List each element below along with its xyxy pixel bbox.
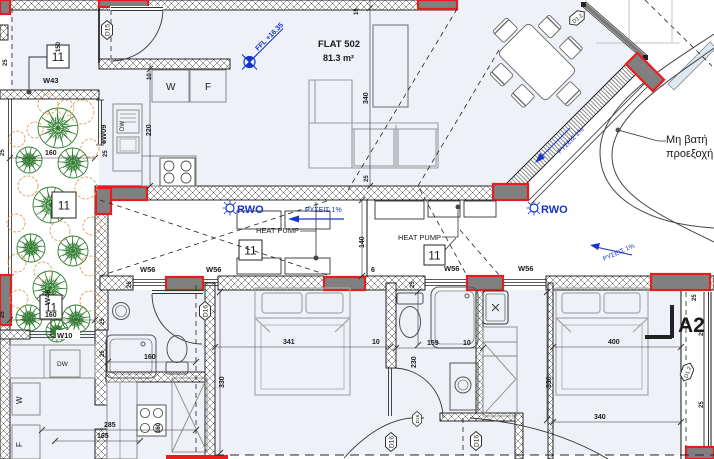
svg-text:25: 25 [692, 294, 698, 301]
svg-text:25: 25 [699, 329, 705, 336]
svg-text:W: W [166, 82, 176, 93]
svg-text:150: 150 [56, 41, 62, 52]
svg-text:W09: W09 [99, 125, 108, 140]
svg-text:165: 165 [97, 433, 109, 440]
svg-text:11: 11 [428, 249, 441, 263]
svg-text:160: 160 [156, 422, 162, 433]
svg-text:D16: D16 [389, 436, 396, 448]
svg-text:11: 11 [58, 199, 71, 213]
svg-text:D16: D16 [415, 414, 421, 423]
svg-text:HEAT PUMP: HEAT PUMP [256, 226, 299, 235]
svg-text:25: 25 [100, 318, 106, 325]
svg-text:341: 341 [283, 339, 295, 346]
svg-text:D16: D16 [474, 435, 481, 447]
svg-text:25: 25 [699, 401, 705, 408]
svg-text:F: F [205, 82, 211, 93]
svg-text:340: 340 [363, 92, 370, 104]
svg-text:D15: D15 [105, 24, 112, 36]
svg-text:340: 340 [594, 414, 606, 421]
svg-text:25: 25 [364, 175, 370, 182]
svg-text:140: 140 [359, 236, 366, 248]
svg-text:W56: W56 [444, 264, 459, 273]
svg-text:10: 10 [147, 73, 153, 80]
svg-text:W56: W56 [206, 265, 221, 274]
svg-text:25: 25 [410, 281, 416, 288]
svg-text:25: 25 [3, 59, 9, 66]
svg-text:160: 160 [144, 354, 156, 361]
svg-text:330: 330 [546, 376, 553, 388]
svg-text:ΡΥΣΕΙΣ 1%: ΡΥΣΕΙΣ 1% [305, 207, 342, 214]
svg-text:RWO: RWO [541, 204, 568, 216]
svg-text:Μη βατή: Μη βατή [666, 134, 708, 146]
svg-text:400: 400 [608, 339, 620, 346]
svg-text:W46: W46 [43, 290, 52, 305]
svg-text:15: 15 [354, 8, 360, 15]
svg-text:W: W [15, 396, 24, 404]
svg-text:DW: DW [57, 361, 69, 368]
svg-text:230: 230 [411, 356, 418, 368]
svg-text:RWO: RWO [237, 204, 264, 216]
svg-text:25: 25 [100, 350, 106, 357]
svg-text:W10: W10 [57, 331, 72, 340]
svg-text:W43: W43 [43, 76, 58, 85]
svg-text:HEAT PUMP: HEAT PUMP [398, 233, 441, 242]
svg-text:25: 25 [0, 149, 6, 156]
svg-text:220: 220 [146, 124, 153, 136]
svg-text:330: 330 [219, 376, 226, 388]
svg-text:160: 160 [45, 150, 57, 157]
svg-text:D16: D16 [203, 305, 210, 317]
svg-text:285: 285 [104, 422, 116, 429]
svg-text:FLAT 502: FLAT 502 [318, 39, 360, 50]
svg-text:10: 10 [372, 339, 380, 346]
svg-text:10: 10 [463, 340, 471, 347]
svg-text:6: 6 [371, 267, 375, 274]
svg-text:160: 160 [45, 312, 57, 319]
svg-text:159: 159 [427, 340, 439, 347]
svg-text:25: 25 [0, 311, 6, 318]
svg-text:W56: W56 [518, 264, 533, 273]
svg-text:F: F [15, 442, 24, 447]
svg-text:81.3 m²: 81.3 m² [323, 53, 354, 63]
svg-text:11: 11 [244, 244, 257, 258]
svg-text:W56: W56 [140, 265, 155, 274]
svg-text:DW: DW [120, 121, 126, 131]
svg-text:προεξοχή: προεξοχή [666, 148, 713, 160]
svg-text:25: 25 [127, 281, 133, 288]
svg-text:25: 25 [103, 150, 109, 157]
